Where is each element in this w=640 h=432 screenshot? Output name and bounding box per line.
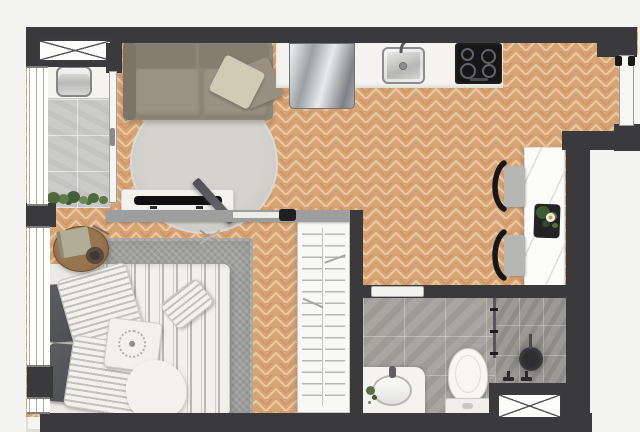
vanity-plant-sprig [366, 386, 375, 395]
wall-topright-block [597, 27, 637, 57]
burner [481, 49, 496, 64]
sofa-back-cushion-left [126, 44, 196, 68]
wardrobe [297, 221, 350, 413]
burner [461, 48, 474, 61]
sofa-armrest [123, 42, 136, 120]
bar-chair-seat [504, 166, 525, 207]
bathroom-slider-door [371, 286, 424, 297]
shower-valve-stem [507, 371, 510, 378]
balcony-door-handle [110, 128, 115, 146]
bedroom-window-low [27, 397, 50, 414]
burner [482, 64, 496, 78]
exterior-top [0, 0, 640, 27]
partition-bracket [490, 308, 498, 311]
exterior-right-lower [590, 148, 640, 432]
bowl-on-table [86, 247, 104, 264]
bedroom-window-wall [27, 226, 50, 367]
vanity-sink [372, 375, 412, 406]
shower-valve-stem [525, 371, 528, 378]
toilet-flush-button [462, 403, 473, 409]
shower-head [519, 347, 543, 371]
bar-chair-seat [504, 235, 525, 276]
shaft-window-bottomright [497, 393, 562, 419]
valet-rack [198, 226, 222, 248]
floorplan-canvas [0, 0, 640, 432]
laundry-sink [56, 66, 92, 97]
shower-arm [529, 334, 532, 349]
vanity-faucet-icon [389, 366, 396, 378]
wall-left-mid-block [26, 203, 56, 227]
wardrobe-shelves-left [302, 228, 323, 406]
cooktop-controls [470, 78, 488, 81]
exterior-left [0, 0, 26, 432]
wall-bedroom-bathroom [350, 210, 363, 417]
bedroom-slider-stop [279, 209, 296, 221]
shaft-window-topleft [38, 39, 112, 62]
wall-left-low-block [27, 366, 53, 398]
bar-plant-flower [546, 213, 555, 222]
burner [460, 63, 476, 79]
sink-drain [399, 62, 407, 70]
refrigerator [289, 43, 355, 109]
balcony-window-wall [27, 66, 48, 206]
exterior-right-door-side [633, 55, 640, 127]
toilet-seat-ring [455, 355, 481, 393]
cooktop [455, 43, 502, 84]
sofa-seat-cushion-left [136, 69, 202, 118]
entrance-door-handle [615, 56, 622, 66]
tv-stand-feet [150, 206, 157, 209]
sofa [123, 42, 273, 120]
wall-balcony-stub [106, 43, 122, 73]
entrance-door-handle [628, 56, 635, 66]
shower-glass-partition [493, 298, 496, 358]
